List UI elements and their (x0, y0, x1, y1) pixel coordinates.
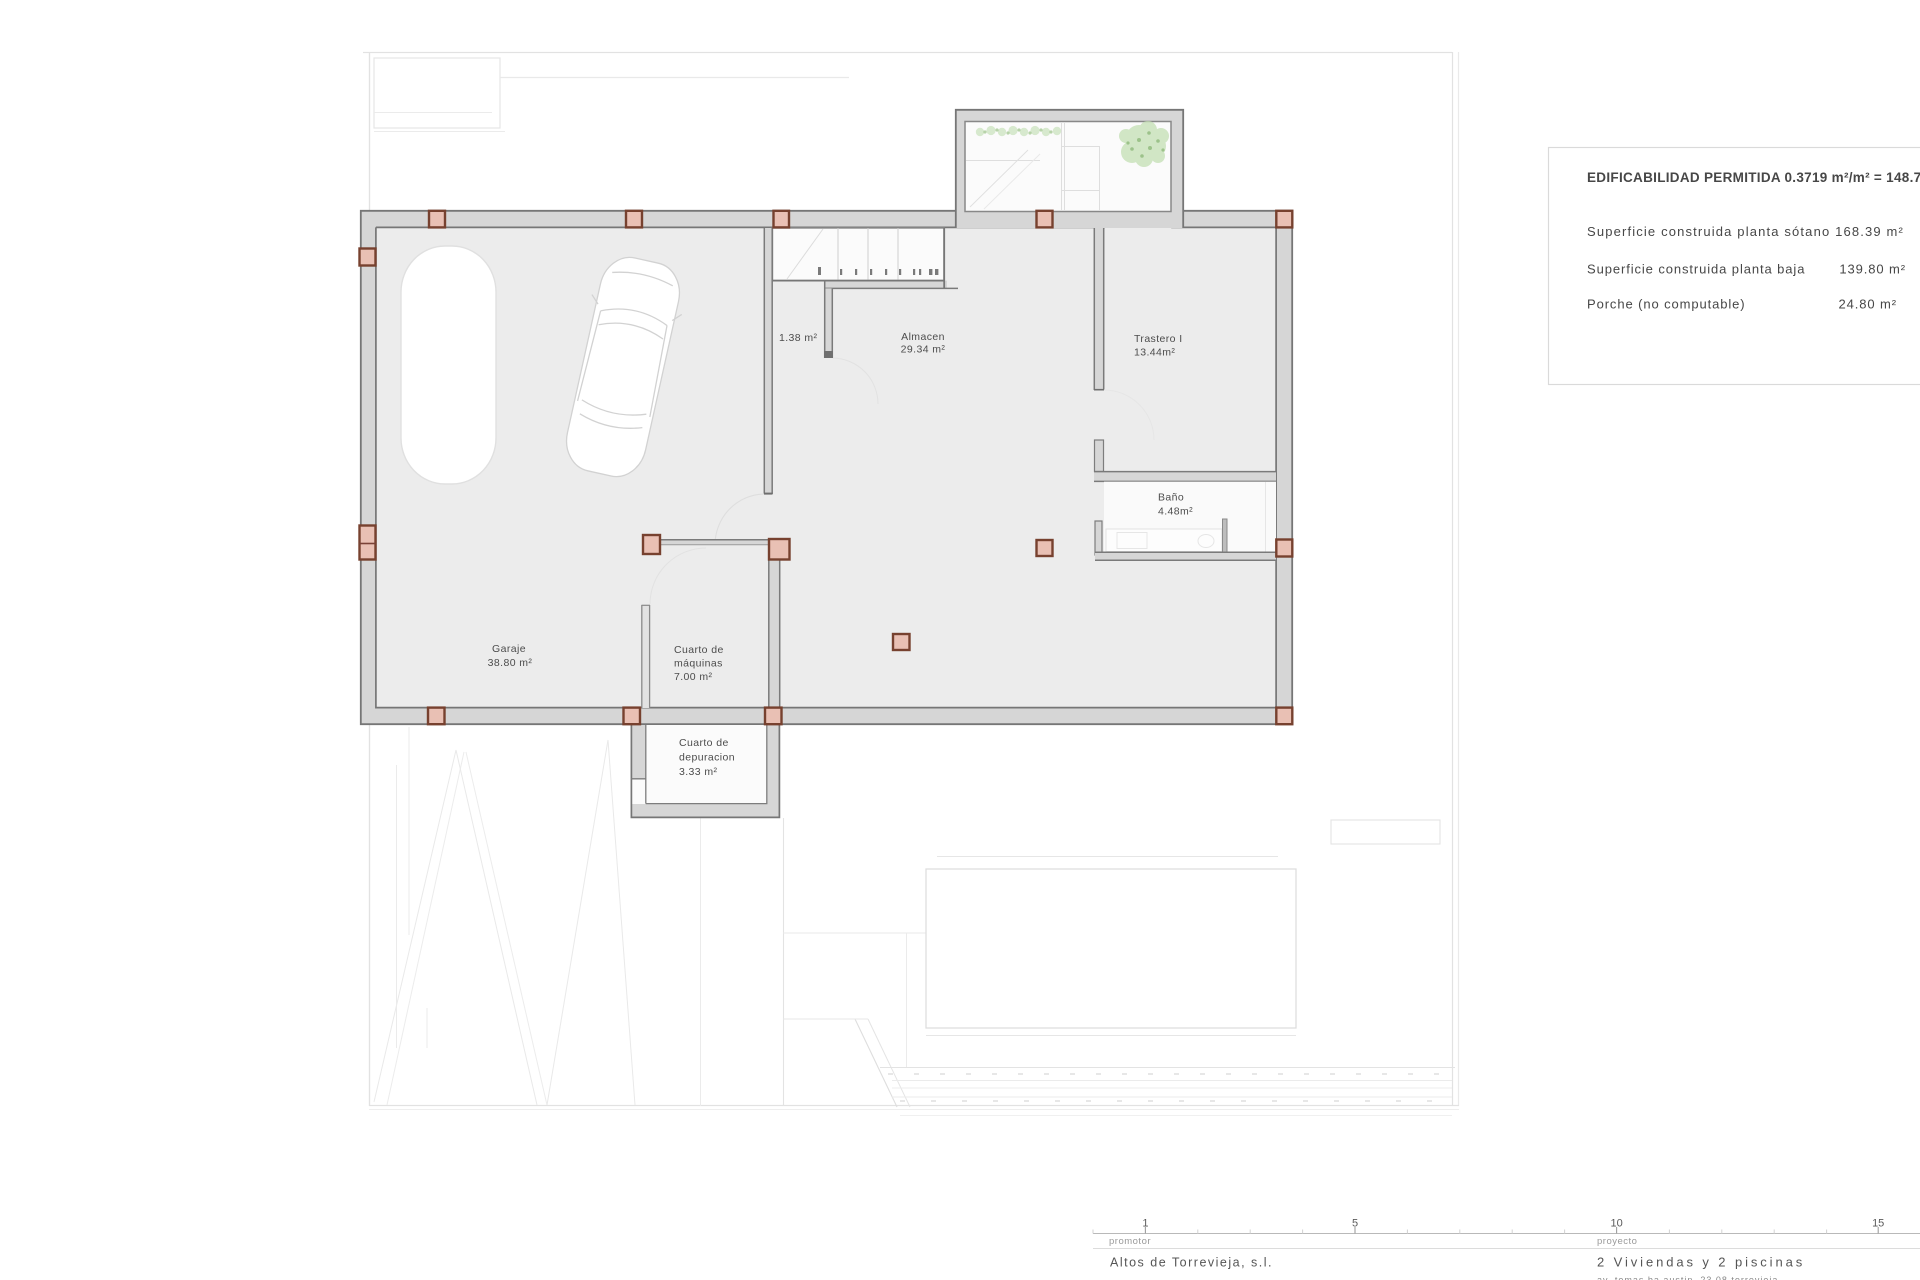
svg-text:promotor: promotor (1109, 1236, 1151, 1247)
svg-text:av. tomas ba austin, 23.08 tor: av. tomas ba austin, 23.08 torrevieja (1597, 1275, 1778, 1280)
svg-text:7.00 m²: 7.00 m² (674, 671, 712, 683)
svg-text:139.80 m²: 139.80 m² (1839, 262, 1906, 277)
svg-text:13.44m²: 13.44m² (1134, 347, 1175, 359)
svg-text:Trastero I: Trastero I (1134, 333, 1183, 345)
svg-text:15: 15 (1872, 1218, 1884, 1230)
svg-text:38.80 m²: 38.80 m² (488, 657, 533, 669)
svg-text:proyecto: proyecto (1597, 1236, 1637, 1247)
svg-text:2 Viviendas y 2 piscinas: 2 Viviendas y 2 piscinas (1597, 1255, 1805, 1270)
svg-text:Superficie construida planta s: Superficie construida planta sótano 168.… (1587, 224, 1904, 239)
svg-text:Baño: Baño (1158, 492, 1184, 504)
svg-text:Porche (no computable): Porche (no computable) (1587, 297, 1746, 312)
svg-text:1: 1 (1142, 1218, 1148, 1230)
svg-text:1.38 m²: 1.38 m² (779, 332, 817, 344)
svg-text:5: 5 (1352, 1218, 1358, 1230)
svg-text:Superficie construida planta b: Superficie construida planta baja (1587, 262, 1805, 277)
svg-text:máquinas: máquinas (674, 658, 723, 670)
svg-text:Cuarto de: Cuarto de (679, 737, 729, 749)
svg-text:10: 10 (1610, 1218, 1622, 1230)
svg-text:Almacen: Almacen (901, 331, 945, 343)
svg-text:29.34 m²: 29.34 m² (901, 344, 946, 356)
svg-text:Garaje: Garaje (492, 643, 526, 655)
svg-text:3.33 m²: 3.33 m² (679, 766, 717, 778)
svg-text:Cuarto de: Cuarto de (674, 644, 724, 656)
svg-text:4.48m²: 4.48m² (1158, 506, 1193, 518)
svg-text:Altos de Torrevieja, s.l.: Altos de Torrevieja, s.l. (1110, 1256, 1273, 1270)
svg-text:EDIFICABILIDAD PERMITIDA 0.371: EDIFICABILIDAD PERMITIDA 0.3719 m²/m² = … (1587, 170, 1920, 185)
svg-text:depuracion: depuracion (679, 752, 735, 764)
svg-text:24.80 m²: 24.80 m² (1838, 297, 1897, 312)
